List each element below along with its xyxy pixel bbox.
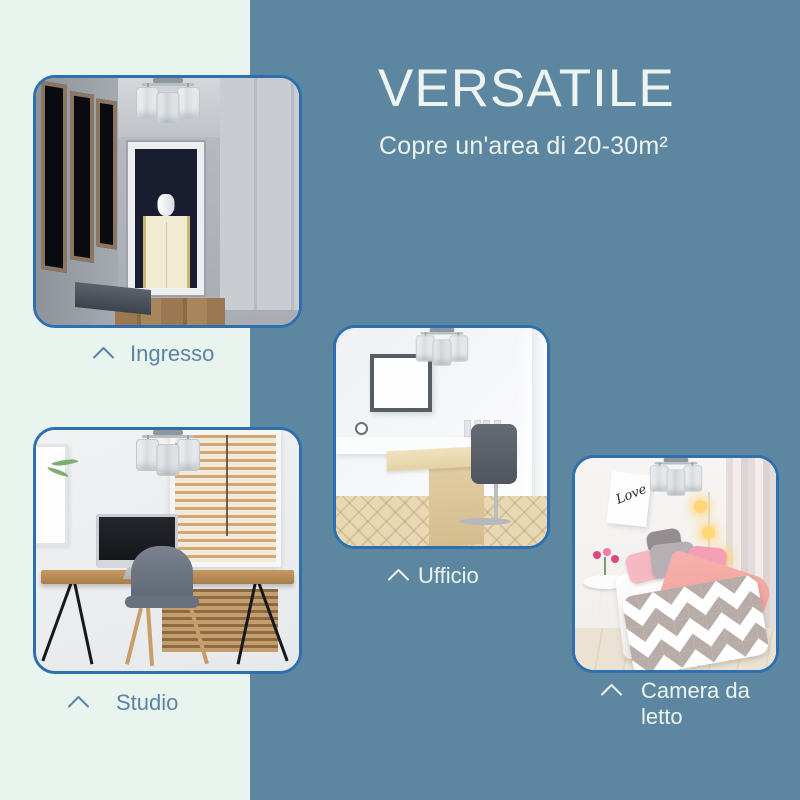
- chevron-up-icon: [67, 695, 90, 708]
- ceiling-lamp-icon: [135, 430, 201, 478]
- chevron-up-icon: [600, 683, 623, 696]
- page-title: VERSATILE: [378, 60, 778, 118]
- room-label-ufficio: Ufficio: [418, 563, 479, 589]
- ceiling-lamp-icon: [648, 458, 702, 497]
- page-subtitle: Copre un'area di 20-30m²: [379, 132, 778, 161]
- wall-picture-frame: [70, 91, 94, 263]
- wall-picture-frame: [41, 81, 67, 273]
- alarm-clock: [355, 422, 368, 435]
- hallway-vase: [158, 194, 175, 216]
- glowing-bulb: [694, 500, 707, 513]
- ceiling-lamp-icon: [135, 78, 201, 126]
- flower-vase: [593, 551, 619, 573]
- photo-studio: [33, 427, 302, 674]
- ceiling-lamp-icon: [414, 328, 468, 367]
- promo-banner: VERSATILE Copre un'area di 20-30m²: [0, 0, 800, 800]
- office-window-light: [532, 328, 547, 498]
- office-chair: [471, 424, 517, 484]
- blind-cord: [226, 435, 228, 536]
- photo-ufficio: [333, 325, 550, 549]
- studio-chair: [131, 546, 193, 604]
- caption-camera-da-letto: Camera da letto: [600, 678, 751, 730]
- office-chair-pole: [494, 481, 498, 520]
- office-photo: [336, 328, 547, 546]
- chevron-up-icon: [92, 346, 115, 359]
- header: VERSATILE Copre un'area di 20-30m²: [378, 60, 778, 161]
- photo-ingresso: [33, 75, 302, 328]
- studio-chair-seat: [125, 596, 199, 608]
- hallway-doorway: [128, 142, 204, 295]
- love-poster-text: Love: [610, 480, 653, 509]
- photo-camera-da-letto: Love: [572, 455, 779, 673]
- office-chair-base: [459, 518, 511, 525]
- wall-picture-frame: [96, 99, 117, 251]
- chevron-up-icon: [387, 568, 410, 581]
- love-poster: Love: [607, 471, 652, 527]
- room-label-camera-da-letto: Camera da letto: [641, 678, 751, 730]
- bedroom-photo: Love: [575, 458, 776, 670]
- book: [464, 420, 471, 437]
- hallway-cabinet: [143, 216, 190, 288]
- room-label-ingresso: Ingresso: [130, 341, 214, 367]
- caption-studio: Studio: [67, 690, 178, 716]
- studio-photo: [36, 430, 299, 671]
- caption-ingresso: Ingresso: [92, 341, 214, 367]
- room-label-studio: Studio: [116, 690, 178, 716]
- caption-ufficio: Ufficio: [387, 563, 479, 589]
- hallway-wardrobe-wall: [220, 78, 299, 310]
- hallway-photo: [36, 78, 299, 325]
- glowing-bulb: [702, 526, 715, 539]
